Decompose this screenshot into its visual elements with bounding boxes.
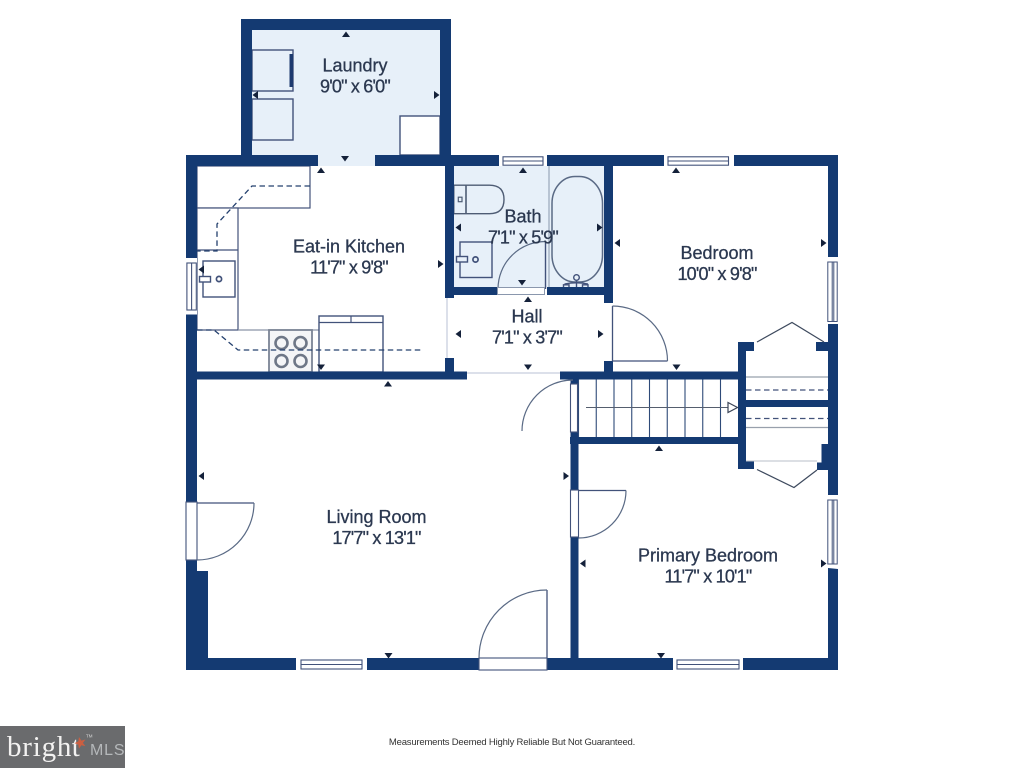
svg-text:Bedroom: Bedroom <box>680 243 753 263</box>
svg-text:Laundry: Laundry <box>322 55 387 75</box>
svg-text:11'7" x 9'8": 11'7" x 9'8" <box>310 258 388 278</box>
svg-text:Hall: Hall <box>511 306 542 326</box>
svg-text:Primary Bedroom: Primary Bedroom <box>638 545 778 565</box>
svg-text:bright: bright <box>7 731 81 763</box>
svg-text:Eat-in Kitchen: Eat-in Kitchen <box>293 236 405 256</box>
svg-text:7'1" x 5'9": 7'1" x 5'9" <box>488 228 558 248</box>
svg-text:Measurements Deemed Highly Rel: Measurements Deemed Highly Reliable But … <box>389 737 635 748</box>
svg-text:9'0" x 6'0": 9'0" x 6'0" <box>320 77 390 97</box>
svg-text:MLS: MLS <box>90 742 125 759</box>
svg-text:Living Room: Living Room <box>326 507 426 527</box>
svg-text:Bath: Bath <box>504 206 541 226</box>
svg-text:17'7" x 13'1": 17'7" x 13'1" <box>332 528 421 548</box>
svg-text:TM: TM <box>86 734 93 739</box>
svg-text:11'7" x 10'1": 11'7" x 10'1" <box>665 567 752 587</box>
svg-text:7'1" x 3'7": 7'1" x 3'7" <box>492 328 562 348</box>
svg-text:10'0" x 9'8": 10'0" x 9'8" <box>677 264 757 284</box>
